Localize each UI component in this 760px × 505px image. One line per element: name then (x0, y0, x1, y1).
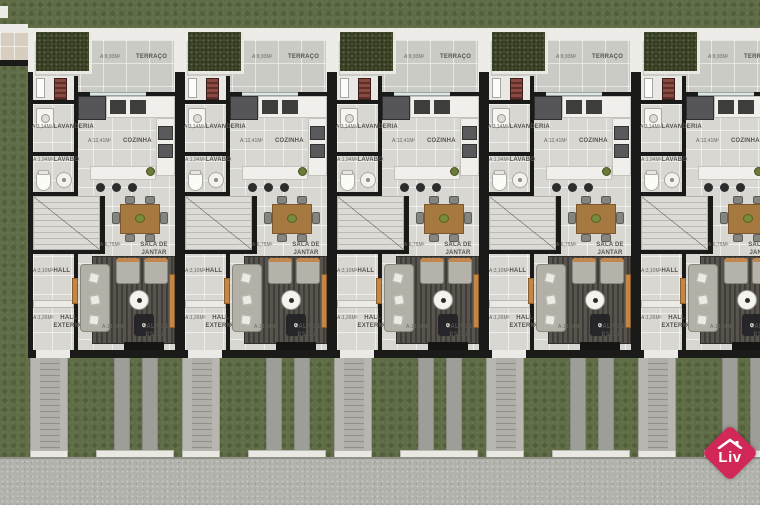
room-name: SALA DE ESTAR (746, 324, 760, 339)
room-name: HALL (54, 268, 71, 276)
room-name: LAVABO (54, 157, 80, 165)
microwave-icon (614, 144, 629, 158)
wall-segment (185, 100, 226, 104)
ac-condenser-icon (510, 78, 523, 100)
pillow-icon (393, 294, 405, 306)
dining-chair-icon (160, 212, 168, 224)
centerpiece-plant-icon (287, 214, 297, 223)
kitchen-island (698, 166, 760, 180)
kitchen-sink-icon (130, 100, 146, 114)
dining-chair-icon (125, 196, 135, 204)
entry-threshold (185, 300, 226, 308)
townhouse-unit: TERRAÇO A:8,93M² LAVANDERIA A:3, (28, 28, 180, 358)
driveway-strip (114, 358, 130, 450)
armchair-icon (752, 258, 760, 284)
room-name: TERRAÇO (136, 54, 167, 62)
living-room-door-leaf (321, 274, 327, 328)
fridge-icon (230, 96, 258, 120)
room-area: A:3,14M² (336, 124, 356, 130)
wall-segment (489, 250, 561, 254)
oven-icon (462, 126, 477, 140)
room-name: TERRAÇO (440, 54, 471, 62)
room-area: A:1,94M² (33, 157, 53, 163)
dining-chair-icon (125, 234, 135, 242)
room-name: TERRAÇO (288, 54, 319, 62)
room-area: A:3,10M² (33, 268, 53, 274)
entry-walkway-steps (638, 358, 676, 450)
edge-wall-fragment (0, 60, 30, 66)
dining-chair-icon (601, 196, 611, 204)
entry-threshold (33, 300, 74, 308)
room-name: HALL (510, 268, 527, 276)
tv-icon (428, 342, 468, 350)
terrace-garden (644, 32, 700, 74)
entry-threshold (337, 300, 378, 308)
fridge-icon (382, 96, 410, 120)
dining-chair-icon (753, 196, 760, 204)
armchair-icon (420, 258, 444, 284)
staircase (489, 196, 556, 250)
ac-condenser-icon (358, 78, 371, 100)
townhouse-unit-wrap: TERRAÇO A:8,93M² LAVANDERIA A:3, (28, 0, 180, 505)
room-area: A:1,26M² (641, 315, 661, 321)
room-name: SALA DE ESTAR (442, 324, 478, 339)
dining-chair-icon (616, 212, 624, 224)
room-area: A:1,94M² (185, 157, 205, 163)
centerpiece-plant-icon (743, 214, 753, 223)
entry-walkway-steps (30, 358, 68, 450)
stool-icon (552, 183, 561, 192)
driveway-strip (266, 358, 282, 450)
room-name: HALL (206, 268, 223, 276)
driveway-strip (570, 358, 586, 450)
cooktop-icon (566, 100, 582, 114)
interior-wall (378, 254, 382, 278)
room-area: A:12,41M² (240, 138, 263, 144)
front-door-opening (188, 350, 222, 358)
sofa-icon (232, 264, 262, 332)
cooktop-icon (110, 100, 126, 114)
dining-chair-icon (264, 212, 272, 224)
ac-condenser-icon (54, 78, 67, 100)
toilet-icon (644, 170, 659, 191)
pillow-icon (241, 294, 253, 306)
room-area: A:12,41M² (392, 138, 415, 144)
microwave-icon (158, 144, 173, 158)
plant-icon (298, 167, 307, 176)
room-name: SALA DE ESTAR (290, 324, 326, 339)
room-area: A:3,14M² (488, 124, 508, 130)
entry-walkway-steps (182, 358, 220, 450)
pillow-icon (89, 294, 101, 306)
cooktop-icon (718, 100, 734, 114)
front-door-opening (340, 350, 374, 358)
room-name: LAVABO (662, 157, 688, 165)
room-area: A:6,75M² (404, 242, 424, 248)
stool-icon (704, 183, 713, 192)
stool-icon (400, 183, 409, 192)
armchair-icon (600, 258, 624, 284)
dining-chair-icon (464, 212, 472, 224)
hall-door-leaf (72, 278, 78, 304)
front-yard (484, 358, 636, 458)
room-area: A:1,26M² (489, 315, 509, 321)
armchair-icon (144, 258, 168, 284)
room-area: A:12,41M² (696, 138, 719, 144)
room-area: A:6,75M² (100, 242, 120, 248)
plant-icon (146, 167, 155, 176)
sink-icon (360, 172, 376, 188)
plant-icon (450, 167, 459, 176)
kitchen-sink-icon (434, 100, 450, 114)
wall-segment (337, 250, 409, 254)
hall-door-leaf (680, 278, 686, 304)
pillow-icon (696, 314, 707, 325)
stool-icon (416, 183, 425, 192)
oven-icon (158, 126, 173, 140)
tv-icon (276, 342, 316, 350)
terrace-garden (188, 32, 244, 74)
utility-door (644, 78, 653, 98)
stool-icon (432, 183, 441, 192)
wall-segment (489, 152, 530, 156)
terrace-garden (36, 32, 92, 74)
sofa-icon (80, 264, 110, 332)
staircase (337, 196, 404, 250)
stool-icon (112, 183, 121, 192)
room-area: A:8,93M² (708, 54, 728, 60)
tv-icon (580, 342, 620, 350)
townhouse-unit-wrap: TERRAÇO A:8,93M² LAVANDERIA A:3, (332, 0, 484, 505)
kitchen-sink-icon (282, 100, 298, 114)
sink-icon (56, 172, 72, 188)
armchair-icon (448, 258, 472, 284)
hall-door-leaf (528, 278, 534, 304)
room-area: A:3,14M² (640, 124, 660, 130)
driveway-strip (142, 358, 158, 450)
sofa-icon (688, 264, 718, 332)
stool-icon (584, 183, 593, 192)
wall-segment (33, 100, 74, 104)
centerpiece-plant-icon (439, 214, 449, 223)
stool-icon (96, 183, 105, 192)
side-table-icon (737, 290, 757, 310)
dining-chair-icon (733, 196, 743, 204)
room-area: A:1,26M² (337, 315, 357, 321)
room-area: A:13,16M² (406, 324, 429, 330)
dining-chair-icon (449, 234, 459, 242)
room-area: A:3,14M² (184, 124, 204, 130)
room-name: LAVANDERIA (510, 124, 550, 132)
room-name: SALA DE JANTAR (288, 242, 324, 257)
liv-logo-text: Liv (718, 449, 741, 466)
hall-door-leaf (376, 278, 382, 304)
liv-logo-inner: Liv (710, 433, 750, 473)
edge-wall-fragment (0, 6, 8, 18)
dining-chair-icon (429, 196, 439, 204)
toilet-icon (188, 170, 203, 191)
townhouse-unit-wrap: TERRAÇO A:8,93M² LAVANDERIA A:3, (180, 0, 332, 505)
staircase (641, 196, 708, 250)
interior-wall (530, 254, 534, 278)
room-name: COZINHA (579, 138, 608, 146)
pillow-icon (88, 272, 100, 284)
kitchen-sink-icon (738, 100, 754, 114)
entry-walkway-steps (334, 358, 372, 450)
room-name: LAVANDERIA (358, 124, 398, 132)
townhouse-unit: TERRAÇO A:8,93M² LAVANDERIA A:3, (484, 28, 636, 358)
armchair-icon (724, 258, 748, 284)
dining-chair-icon (277, 196, 287, 204)
dining-chair-icon (277, 234, 287, 242)
kitchen-sink-icon (586, 100, 602, 114)
room-name: COZINHA (123, 138, 152, 146)
tv-icon (124, 342, 164, 350)
stool-icon (280, 183, 289, 192)
pillow-icon (392, 272, 404, 284)
room-area: A:8,93M² (556, 54, 576, 60)
townhouse-unit: TERRAÇO A:8,93M² LAVANDERIA A:3, (180, 28, 332, 358)
side-table-icon (129, 290, 149, 310)
wall-segment (337, 100, 378, 104)
side-table-icon (433, 290, 453, 310)
pillow-icon (88, 314, 99, 325)
room-name: HALL (662, 268, 679, 276)
oven-icon (614, 126, 629, 140)
room-area: A:1,94M² (337, 157, 357, 163)
room-name: LAVANDERIA (662, 124, 702, 132)
sink-icon (664, 172, 680, 188)
dining-chair-icon (753, 234, 760, 242)
wall-segment (641, 152, 682, 156)
utility-door (492, 78, 501, 98)
driveway-strip (446, 358, 462, 450)
dining-chair-icon (733, 234, 743, 242)
townhouse-unit: TERRAÇO A:8,93M² LAVANDERIA A:3, (332, 28, 484, 358)
interior-wall (226, 254, 230, 278)
pillow-icon (545, 294, 557, 306)
sink-icon (512, 172, 528, 188)
room-name: SALA DE JANTAR (136, 242, 172, 257)
room-name: LAVABO (358, 157, 384, 165)
room-area: A:3,10M² (641, 268, 661, 274)
dining-chair-icon (297, 234, 307, 242)
front-yard (28, 358, 180, 458)
fridge-icon (534, 96, 562, 120)
room-area: A:3,10M² (337, 268, 357, 274)
wall-segment (33, 250, 105, 254)
pillow-icon (697, 294, 709, 306)
room-area: A:13,16M² (558, 324, 581, 330)
room-area: A:6,75M² (708, 242, 728, 248)
front-yard (332, 358, 484, 458)
room-name: TERRAÇO (592, 54, 623, 62)
room-name: COZINHA (275, 138, 304, 146)
wall-segment (641, 100, 682, 104)
room-name: SALA DE JANTAR (440, 242, 476, 257)
wall-segment (33, 152, 74, 156)
room-name: LAVANDERIA (206, 124, 246, 132)
stool-icon (264, 183, 273, 192)
sidewalk (0, 457, 760, 505)
living-room-door-leaf (625, 274, 631, 328)
ac-condenser-icon (662, 78, 675, 100)
room-area: A:3,10M² (489, 268, 509, 274)
stool-icon (720, 183, 729, 192)
room-name: SALA DE ESTAR (138, 324, 174, 339)
armchair-icon (296, 258, 320, 284)
stool-icon (128, 183, 137, 192)
pillow-icon (544, 314, 555, 325)
front-door-opening (492, 350, 526, 358)
wall-segment (185, 152, 226, 156)
interior-wall (682, 254, 686, 278)
room-name: COZINHA (731, 138, 760, 146)
room-area: A:1,26M² (33, 315, 53, 321)
armchair-icon (268, 258, 292, 284)
terrace-garden (492, 32, 548, 74)
room-area: A:13,16M² (254, 324, 277, 330)
oven-icon (310, 126, 325, 140)
armchair-icon (116, 258, 140, 284)
pillow-icon (392, 314, 403, 325)
room-name: COZINHA (427, 138, 456, 146)
microwave-icon (310, 144, 325, 158)
room-area: A:8,93M² (404, 54, 424, 60)
wall-segment (185, 250, 257, 254)
stool-icon (568, 183, 577, 192)
tv-icon (732, 342, 760, 350)
room-area: A:12,41M² (88, 138, 111, 144)
entry-walkway-steps (486, 358, 524, 450)
front-yard (180, 358, 332, 458)
driveway-strip (294, 358, 310, 450)
dining-chair-icon (581, 196, 591, 204)
room-area: A:6,75M² (252, 242, 272, 248)
pillow-icon (240, 272, 252, 284)
room-area: A:1,94M² (641, 157, 661, 163)
neighbor-patio-fragment (0, 32, 28, 60)
dining-chair-icon (112, 212, 120, 224)
room-area: A:12,41M² (544, 138, 567, 144)
room-area: A:1,94M² (489, 157, 509, 163)
room-name: LAVABO (206, 157, 232, 165)
stool-icon (736, 183, 745, 192)
cooktop-icon (414, 100, 430, 114)
dining-chair-icon (145, 234, 155, 242)
wall-segment (641, 250, 713, 254)
room-name: TERRAÇO (744, 54, 760, 62)
edge-wall-fragment (0, 24, 28, 32)
townhouse-unit: TERRAÇO A:8,93M² LAVANDERIA A:3, (636, 28, 760, 358)
driveway-strip (750, 358, 760, 450)
toilet-icon (340, 170, 355, 191)
house-roof-icon (717, 438, 743, 449)
plant-icon (602, 167, 611, 176)
staircase (185, 196, 252, 250)
wall-segment (489, 100, 530, 104)
armchair-icon (572, 258, 596, 284)
utility-door (340, 78, 349, 98)
dining-chair-icon (145, 196, 155, 204)
room-area: A:13,16M² (102, 324, 125, 330)
room-name: SALA DE ESTAR (594, 324, 630, 339)
room-name: LAVABO (510, 157, 536, 165)
toilet-icon (36, 170, 51, 191)
dining-chair-icon (581, 234, 591, 242)
entry-threshold (641, 300, 682, 308)
centerpiece-plant-icon (135, 214, 145, 223)
townhouse-unit-wrap: TERRAÇO A:8,93M² LAVANDERIA A:3, (484, 0, 636, 505)
room-area: A:3,14M² (32, 124, 52, 130)
driveway-strip (598, 358, 614, 450)
floor-plan-rendering: TERRAÇO A:8,93M² LAVANDERIA A:3, (0, 0, 760, 505)
hall-door-leaf (224, 278, 230, 304)
room-name: LAVANDERIA (54, 124, 94, 132)
driveway-strip (418, 358, 434, 450)
room-name: HALL (358, 268, 375, 276)
stool-icon (248, 183, 257, 192)
pillow-icon (544, 272, 556, 284)
fridge-icon (78, 96, 106, 120)
dining-chair-icon (601, 234, 611, 242)
pillow-icon (696, 272, 708, 284)
room-area: A:3,10M² (185, 268, 205, 274)
utility-door (188, 78, 197, 98)
living-room-door-leaf (473, 274, 479, 328)
fridge-icon (686, 96, 714, 120)
dining-chair-icon (568, 212, 576, 224)
sofa-icon (536, 264, 566, 332)
room-name: SALA DE JANTAR (744, 242, 760, 257)
townhouse-unit-wrap: TERRAÇO A:8,93M² LAVANDERIA A:3, (636, 0, 760, 505)
dining-chair-icon (720, 212, 728, 224)
dining-chair-icon (429, 234, 439, 242)
interior-wall (74, 254, 78, 278)
room-area: A:8,93M² (100, 54, 120, 60)
cooktop-icon (262, 100, 278, 114)
dining-chair-icon (416, 212, 424, 224)
sink-icon (208, 172, 224, 188)
dining-chair-icon (297, 196, 307, 204)
dining-chair-icon (312, 212, 320, 224)
plant-icon (754, 167, 760, 176)
room-area: A:1,26M² (185, 315, 205, 321)
microwave-icon (462, 144, 477, 158)
wall-segment (337, 152, 378, 156)
sofa-icon (384, 264, 414, 332)
entry-threshold (489, 300, 530, 308)
ac-condenser-icon (206, 78, 219, 100)
room-area: A:6,75M² (556, 242, 576, 248)
centerpiece-plant-icon (591, 214, 601, 223)
front-door-opening (644, 350, 678, 358)
terrace-garden (340, 32, 396, 74)
liv-logo: Liv (702, 425, 759, 482)
toilet-icon (492, 170, 507, 191)
room-name: SALA DE JANTAR (592, 242, 628, 257)
side-table-icon (281, 290, 301, 310)
pillow-icon (240, 314, 251, 325)
side-table-icon (585, 290, 605, 310)
staircase (33, 196, 100, 250)
room-area: A:13,16M² (710, 324, 733, 330)
utility-door (36, 78, 45, 98)
room-area: A:8,93M² (252, 54, 272, 60)
front-door-opening (36, 350, 70, 358)
living-room-door-leaf (169, 274, 175, 328)
dining-chair-icon (449, 196, 459, 204)
